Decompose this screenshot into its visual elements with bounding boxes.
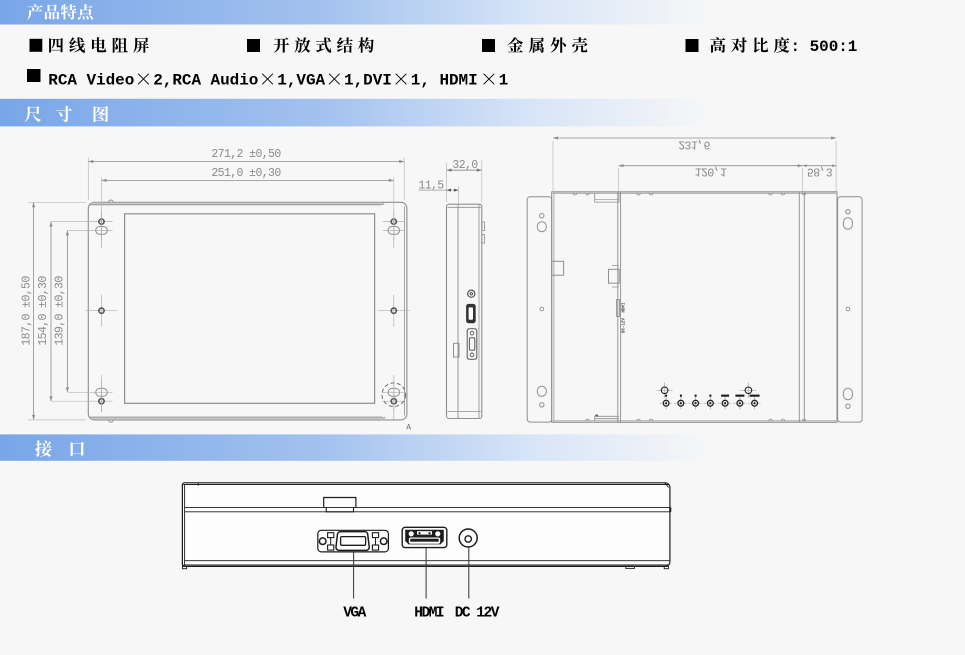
svg-text:1,DVI: 1,DVI <box>344 72 392 90</box>
svg-text:154,0 ±0,30: 154,0 ±0,30 <box>37 276 50 346</box>
svg-text:231,6: 231,6 <box>678 138 710 151</box>
svg-text:DC 12V: DC 12V <box>455 606 500 622</box>
svg-text:A: A <box>406 424 411 433</box>
svg-text:RCA Video: RCA Video <box>48 72 134 90</box>
svg-text:139,0 ±0,30: 139,0 ±0,30 <box>54 276 67 346</box>
svg-text:VGA: VGA <box>343 606 366 622</box>
svg-text:DC-12V: DC-12V <box>622 317 626 333</box>
svg-text:HDMI: HDMI <box>622 302 626 313</box>
svg-text:120,1: 120,1 <box>695 165 727 178</box>
svg-text:271,2 ±0,50: 271,2 ±0,50 <box>211 148 281 161</box>
svg-text:HDMI: HDMI <box>414 606 444 622</box>
svg-text:251,0 ±0,30: 251,0 ±0,30 <box>211 167 281 180</box>
svg-text:1, HDMI: 1, HDMI <box>411 72 478 90</box>
svg-text:58,3: 58,3 <box>807 165 833 178</box>
svg-text:2,RCA Audio: 2,RCA Audio <box>153 72 258 90</box>
svg-text:: 500:1: : 500:1 <box>791 38 858 56</box>
svg-text:1: 1 <box>499 72 509 90</box>
svg-text:11,5: 11,5 <box>418 180 444 193</box>
svg-text:1,VGA: 1,VGA <box>277 72 325 90</box>
svg-text:187,0 ±0,50: 187,0 ±0,50 <box>20 276 33 346</box>
